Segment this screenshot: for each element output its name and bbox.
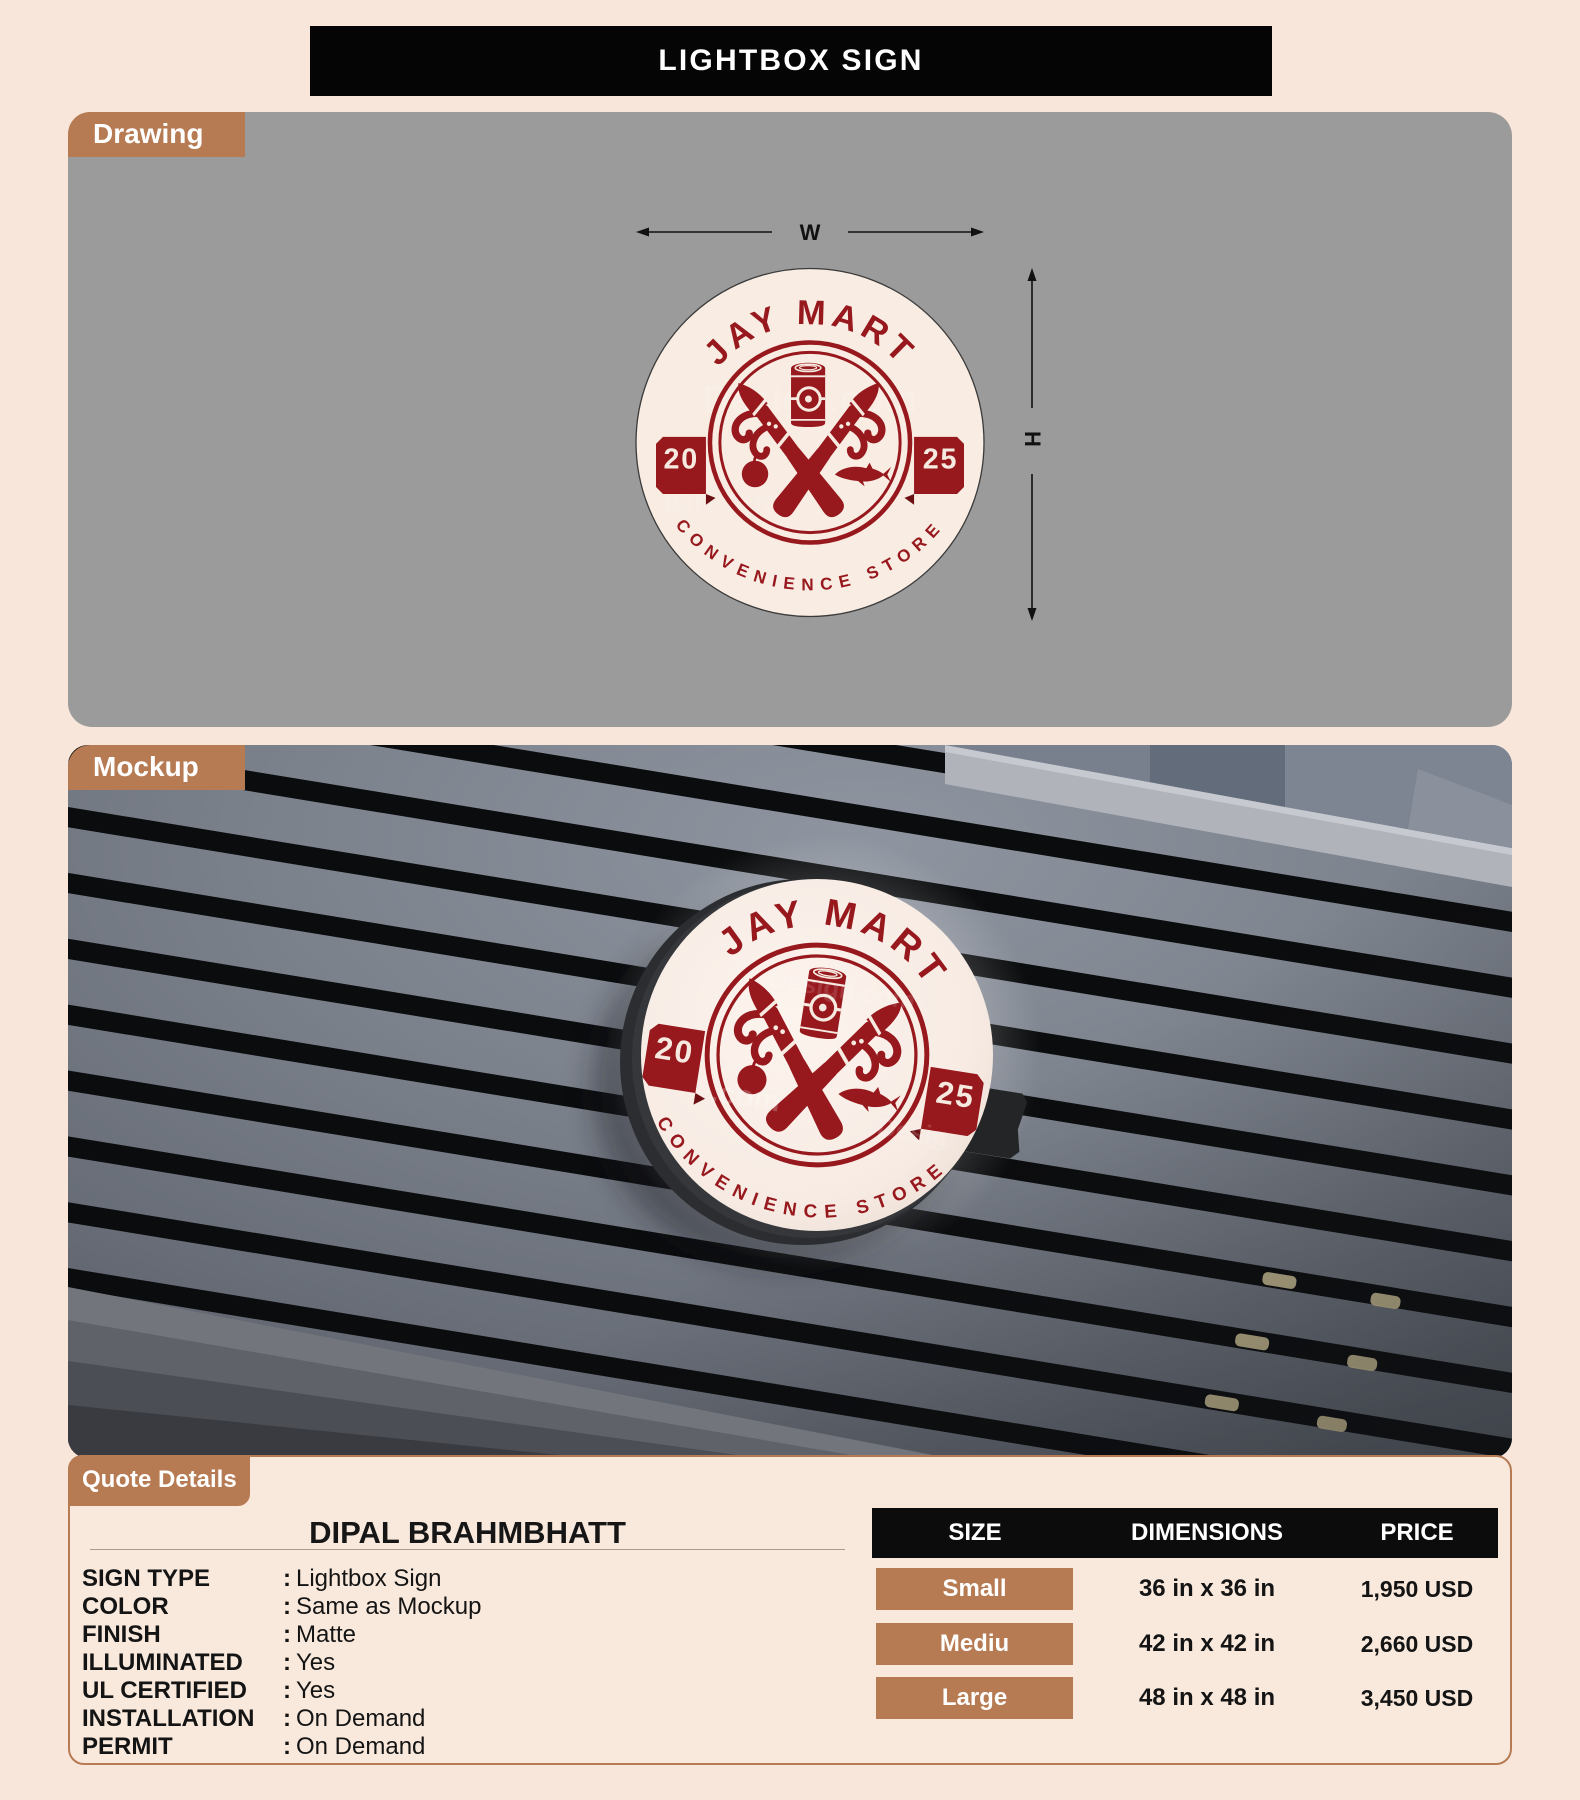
svg-text:W: W <box>800 220 821 245</box>
svg-text:H: H <box>1020 431 1045 447</box>
